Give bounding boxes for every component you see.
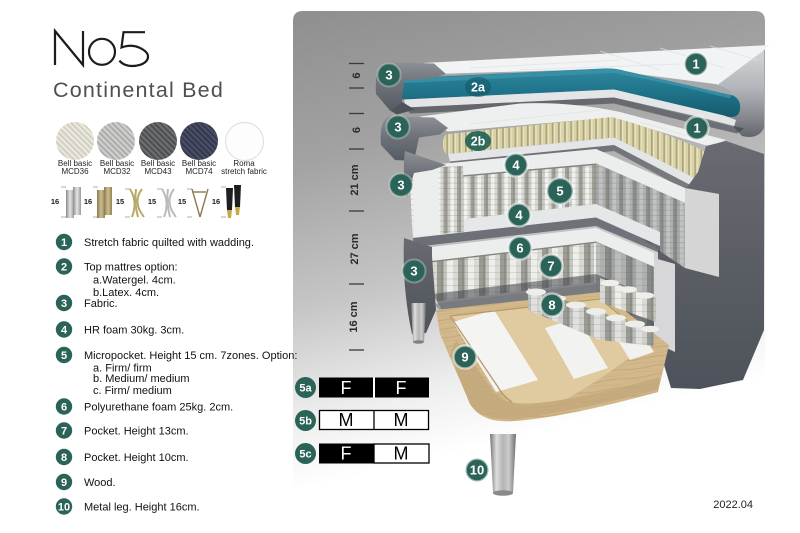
svg-text:6: 6 — [351, 72, 363, 78]
svg-text:HR foam 30kg. 3cm.: HR foam 30kg. 3cm. — [84, 325, 184, 337]
svg-text:3: 3 — [410, 264, 417, 279]
svg-text:7: 7 — [547, 259, 554, 274]
svg-text:1: 1 — [693, 121, 700, 136]
svg-text:3: 3 — [61, 298, 67, 310]
svg-text:2022.04: 2022.04 — [713, 499, 753, 511]
svg-text:16: 16 — [51, 197, 59, 206]
svg-text:4: 4 — [61, 325, 68, 337]
svg-text:15: 15 — [178, 197, 186, 206]
svg-text:10: 10 — [58, 502, 70, 514]
svg-text:10: 10 — [470, 463, 484, 478]
svg-text:2b: 2b — [471, 135, 486, 149]
svg-text:16: 16 — [84, 197, 92, 206]
svg-text:F: F — [341, 378, 352, 398]
svg-text:Fabric.: Fabric. — [84, 298, 118, 310]
svg-text:Pocket. Height 13cm.: Pocket. Height 13cm. — [84, 426, 189, 438]
svg-text:1: 1 — [61, 237, 67, 249]
svg-text:4: 4 — [512, 158, 520, 173]
svg-text:3: 3 — [397, 178, 404, 193]
svg-text:16 cm: 16 cm — [348, 301, 360, 332]
svg-text:5: 5 — [61, 350, 67, 362]
svg-text:8: 8 — [548, 298, 555, 313]
svg-text:3: 3 — [394, 120, 401, 135]
svg-text:3: 3 — [385, 68, 392, 83]
svg-text:1: 1 — [692, 57, 699, 72]
svg-text:c. Firm/ medium: c. Firm/ medium — [93, 385, 172, 397]
svg-text:Micropocket. Height 15 cm. 7zo: Micropocket. Height 15 cm. 7zones. Optio… — [84, 350, 297, 362]
svg-text:Polyurethane foam 25kg. 2cm.: Polyurethane foam 25kg. 2cm. — [84, 402, 233, 414]
svg-text:Wood.: Wood. — [84, 477, 116, 489]
svg-text:6: 6 — [516, 241, 523, 256]
svg-text:15: 15 — [148, 197, 156, 206]
svg-text:9: 9 — [461, 350, 468, 365]
svg-text:M: M — [394, 410, 409, 430]
svg-text:M: M — [394, 444, 409, 464]
svg-text:4: 4 — [515, 208, 523, 223]
svg-text:Metal leg. Height 16cm.: Metal leg. Height 16cm. — [84, 502, 200, 514]
svg-text:6: 6 — [351, 127, 363, 133]
svg-text:27 cm: 27 cm — [349, 233, 361, 264]
svg-text:2: 2 — [61, 262, 67, 274]
svg-text:Pocket. Height 10cm.: Pocket. Height 10cm. — [84, 452, 189, 464]
svg-text:a.Watergel. 4cm.: a.Watergel. 4cm. — [93, 275, 176, 287]
svg-text:9: 9 — [61, 477, 67, 489]
svg-text:7: 7 — [61, 426, 67, 438]
svg-text:2a: 2a — [471, 81, 486, 95]
svg-text:b. Medium/ medium: b. Medium/ medium — [93, 373, 190, 385]
svg-text:15: 15 — [116, 197, 124, 206]
svg-text:5: 5 — [556, 184, 563, 199]
svg-text:Top mattres option:: Top mattres option: — [84, 262, 178, 274]
svg-text:F: F — [341, 444, 352, 464]
svg-text:16: 16 — [212, 197, 220, 206]
svg-text:F: F — [396, 378, 407, 398]
svg-text:Stretch fabric quilted with wa: Stretch fabric quilted with wadding. — [84, 237, 254, 249]
svg-text:8: 8 — [61, 452, 67, 464]
svg-text:M: M — [339, 410, 354, 430]
svg-text:21 cm: 21 cm — [349, 164, 361, 195]
svg-text:6: 6 — [61, 402, 67, 414]
